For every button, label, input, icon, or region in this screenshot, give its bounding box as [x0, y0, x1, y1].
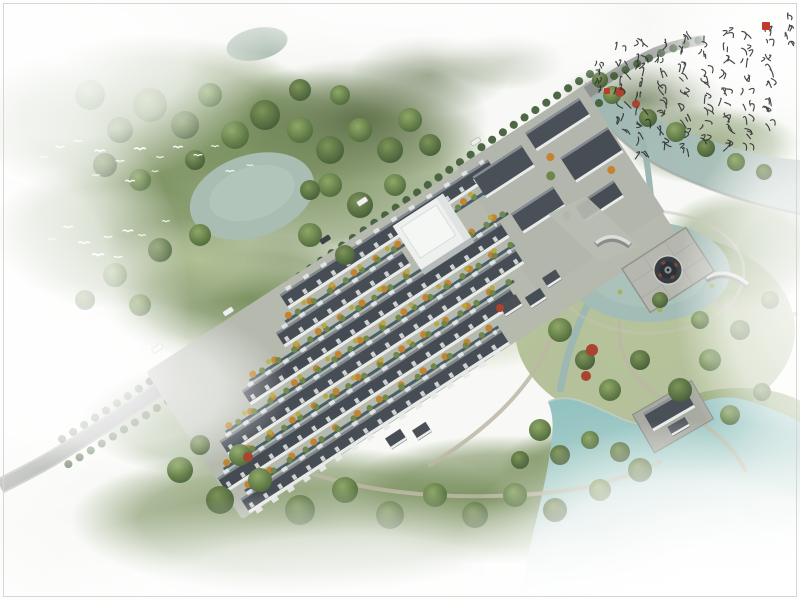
mist-overlay: [0, 0, 800, 600]
rendering-canvas: [0, 0, 800, 600]
